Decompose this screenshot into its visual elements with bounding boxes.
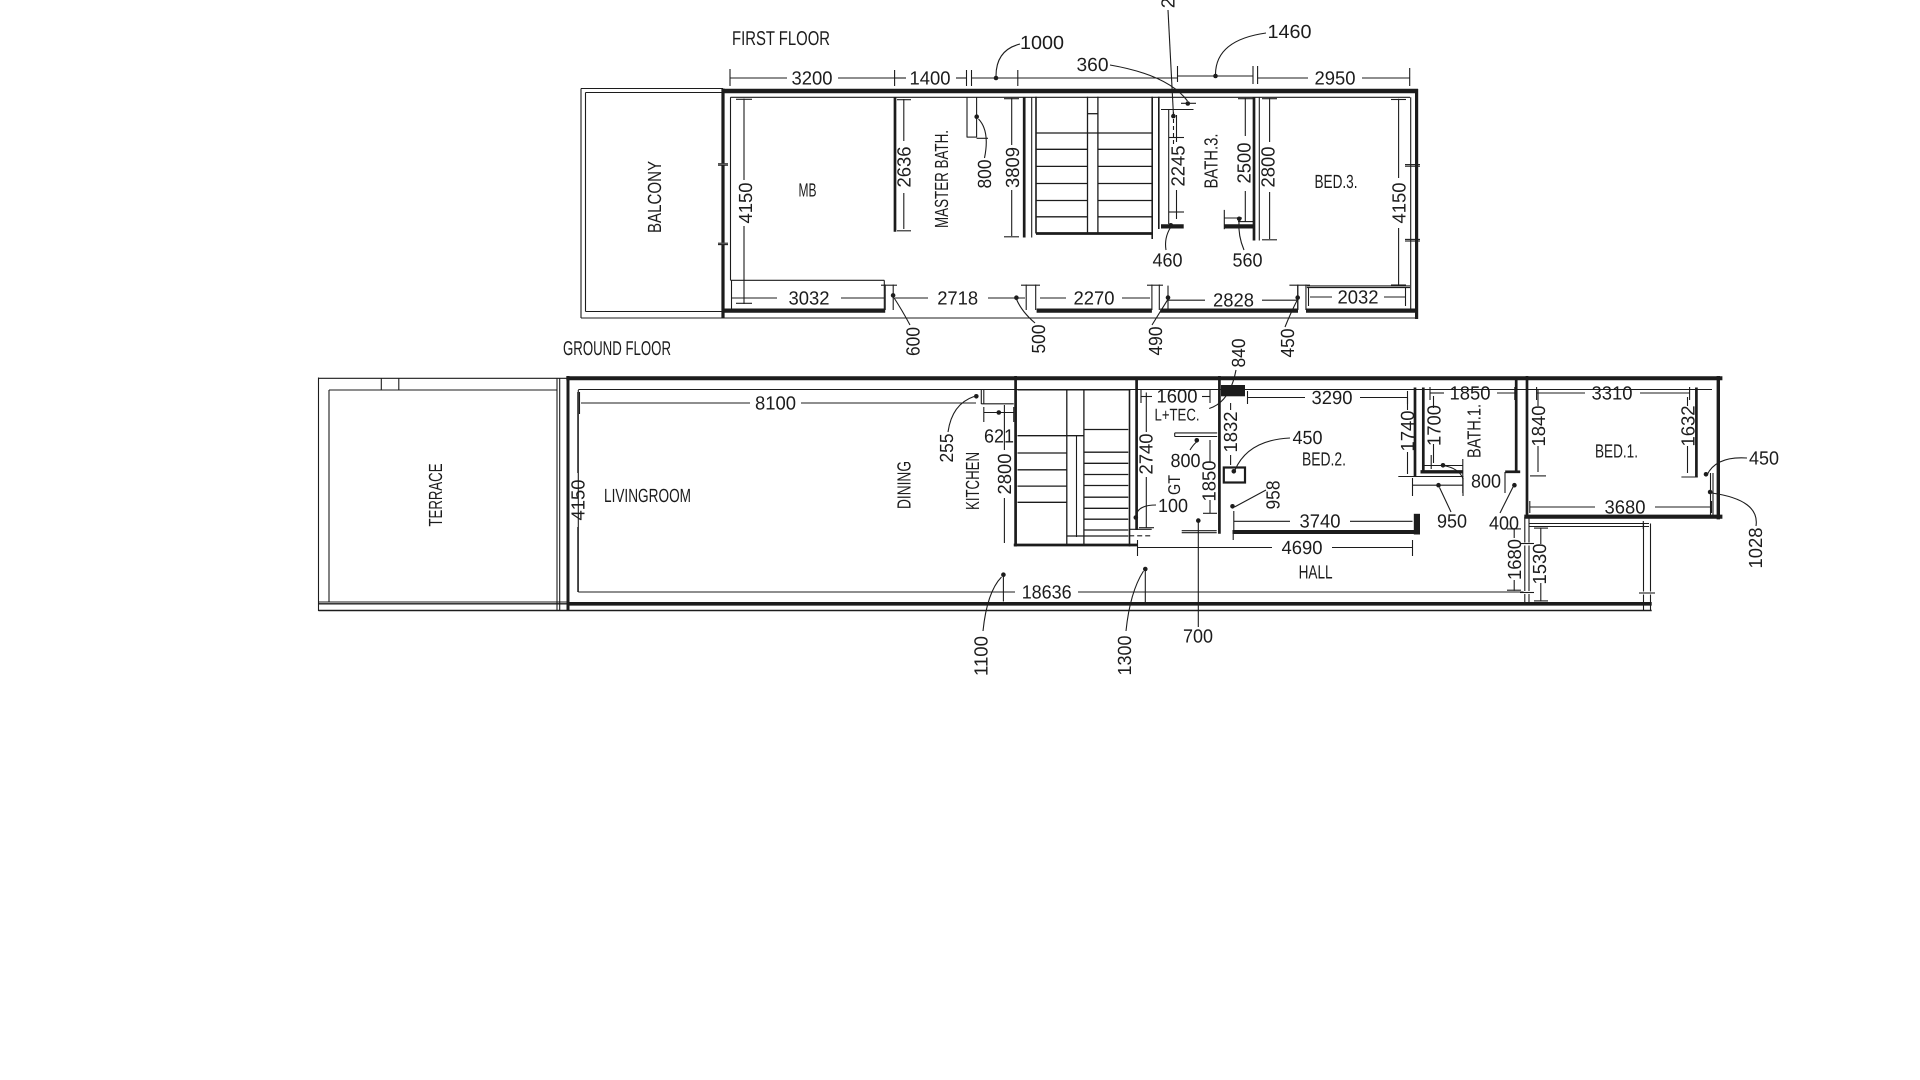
svg-text:490: 490 <box>1146 327 1167 356</box>
svg-text:BATH.1.: BATH.1. <box>1465 404 1486 458</box>
svg-text:LIVINGROOM: LIVINGROOM <box>604 486 691 507</box>
svg-text:BALCONY: BALCONY <box>645 161 666 233</box>
svg-text:3740: 3740 <box>1300 512 1341 533</box>
svg-text:2800: 2800 <box>995 454 1016 495</box>
svg-text:1530: 1530 <box>1530 544 1551 585</box>
svg-text:1028: 1028 <box>1746 528 1767 569</box>
svg-text:2828: 2828 <box>1213 291 1254 312</box>
svg-text:3680: 3680 <box>1605 498 1646 519</box>
svg-text:2032: 2032 <box>1338 288 1379 309</box>
svg-text:700: 700 <box>1183 627 1213 648</box>
svg-text:450: 450 <box>1278 329 1299 358</box>
svg-text:1600: 1600 <box>1157 387 1198 408</box>
svg-text:255: 255 <box>937 434 958 463</box>
svg-text:DINING: DINING <box>894 461 915 509</box>
svg-text:360: 360 <box>1077 55 1109 76</box>
svg-text:2800: 2800 <box>1258 147 1279 188</box>
svg-text:2636: 2636 <box>895 147 916 188</box>
svg-text:4150: 4150 <box>569 480 590 521</box>
svg-text:1300: 1300 <box>1115 636 1136 676</box>
svg-text:1840: 1840 <box>1529 406 1550 447</box>
svg-text:800: 800 <box>1471 472 1501 493</box>
svg-text:621: 621 <box>984 427 1014 448</box>
svg-text:FIRST FLOOR: FIRST FLOOR <box>732 28 830 50</box>
svg-text:1680: 1680 <box>1505 539 1526 580</box>
svg-text:8100: 8100 <box>755 394 796 415</box>
svg-text:840: 840 <box>1229 339 1250 368</box>
svg-text:2950: 2950 <box>1315 69 1356 90</box>
svg-text:450: 450 <box>1293 428 1323 449</box>
svg-text:2: 2 <box>1158 0 1179 8</box>
svg-text:100: 100 <box>1158 496 1188 517</box>
svg-text:BATH.3.: BATH.3. <box>1201 134 1222 189</box>
svg-text:1850: 1850 <box>1199 461 1220 502</box>
svg-text:2270: 2270 <box>1074 289 1115 310</box>
svg-text:GROUND FLOOR: GROUND FLOOR <box>563 338 671 360</box>
svg-text:800: 800 <box>975 160 996 189</box>
svg-text:GT: GT <box>1165 475 1184 495</box>
svg-text:BED.3.: BED.3. <box>1315 172 1358 193</box>
svg-text:1460: 1460 <box>1268 22 1312 43</box>
svg-text:1850: 1850 <box>1450 384 1491 405</box>
svg-text:BED.1.: BED.1. <box>1595 442 1638 463</box>
svg-text:4150: 4150 <box>1389 183 1410 224</box>
svg-text:3310: 3310 <box>1592 384 1633 405</box>
svg-text:4690: 4690 <box>1282 538 1323 559</box>
svg-text:2500: 2500 <box>1235 143 1256 184</box>
svg-text:800: 800 <box>1171 451 1201 472</box>
svg-text:3809: 3809 <box>1003 147 1024 188</box>
svg-text:2718: 2718 <box>937 289 978 310</box>
svg-text:MASTER BATH.: MASTER BATH. <box>932 130 953 228</box>
svg-text:L+TEC.: L+TEC. <box>1155 406 1200 425</box>
svg-text:2740: 2740 <box>1136 434 1157 475</box>
svg-text:BED.2.: BED.2. <box>1302 450 1346 471</box>
svg-text:1832: 1832 <box>1221 412 1242 453</box>
svg-text:KITCHEN: KITCHEN <box>963 452 984 510</box>
svg-text:958: 958 <box>1263 481 1284 510</box>
svg-text:TERRACE: TERRACE <box>426 464 447 527</box>
svg-text:950: 950 <box>1437 512 1467 533</box>
svg-text:1000: 1000 <box>1020 33 1064 54</box>
svg-text:500: 500 <box>1029 325 1050 354</box>
svg-text:3200: 3200 <box>792 69 833 90</box>
svg-text:4150: 4150 <box>736 183 757 224</box>
svg-text:1400: 1400 <box>910 69 951 90</box>
svg-text:460: 460 <box>1153 251 1183 272</box>
svg-text:1700: 1700 <box>1424 405 1445 446</box>
svg-text:3032: 3032 <box>789 289 830 310</box>
svg-text:2245: 2245 <box>1168 146 1189 187</box>
svg-text:18636: 18636 <box>1022 583 1072 604</box>
svg-text:HALL: HALL <box>1299 563 1333 584</box>
svg-text:450: 450 <box>1749 449 1779 470</box>
svg-text:MB: MB <box>799 181 817 202</box>
svg-text:560: 560 <box>1233 251 1263 272</box>
svg-text:3290: 3290 <box>1312 388 1353 409</box>
svg-text:600: 600 <box>903 327 924 356</box>
svg-text:1100: 1100 <box>971 636 992 676</box>
